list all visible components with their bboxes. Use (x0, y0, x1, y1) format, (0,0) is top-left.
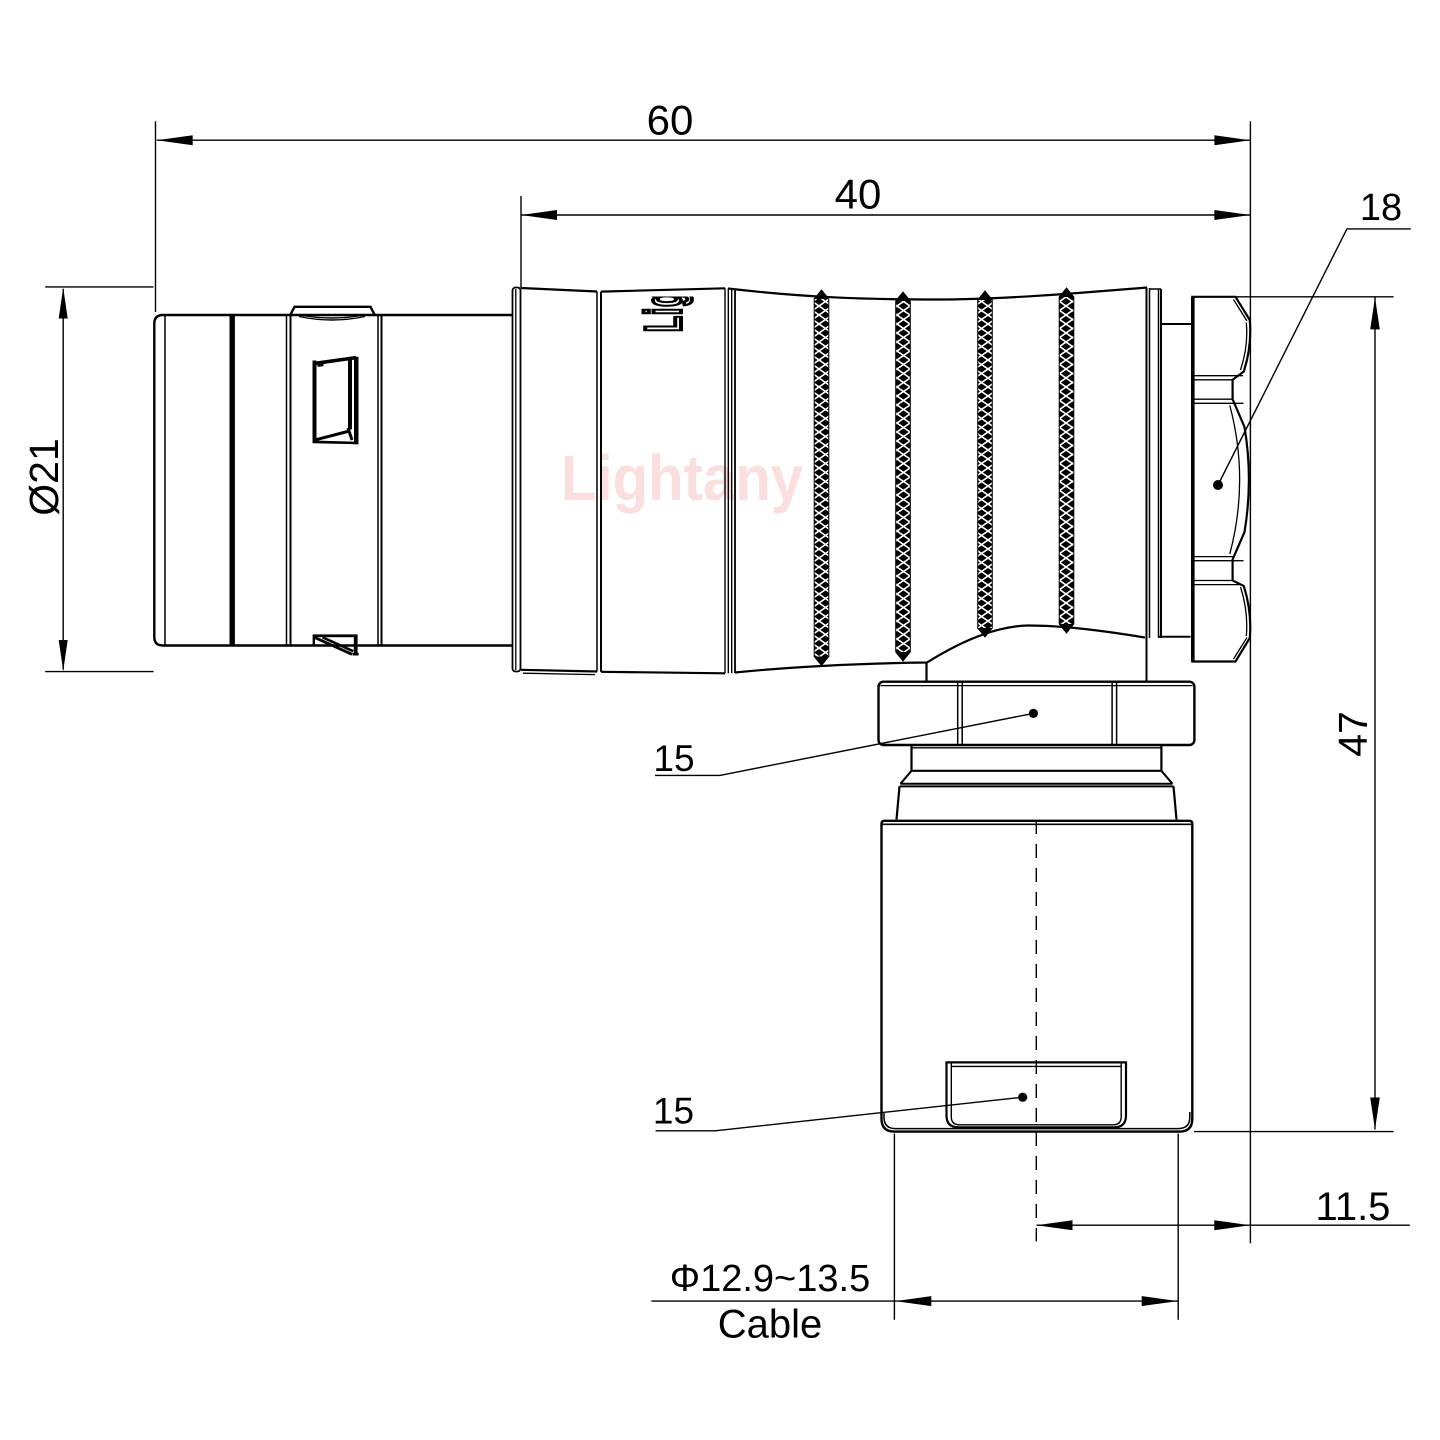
svg-text:60: 60 (647, 97, 694, 144)
svg-text:18: 18 (1360, 187, 1402, 229)
svg-text:Cable: Cable (718, 1303, 823, 1347)
svg-text:47: 47 (1330, 711, 1376, 757)
svg-text:40: 40 (835, 171, 882, 218)
svg-text:Ø21: Ø21 (21, 438, 67, 516)
svg-text:15: 15 (653, 738, 694, 779)
svg-text:Φ12.9~13.5: Φ12.9~13.5 (670, 1258, 870, 1300)
svg-text:11.5: 11.5 (1316, 1185, 1391, 1229)
svg-text:15: 15 (653, 1091, 694, 1132)
